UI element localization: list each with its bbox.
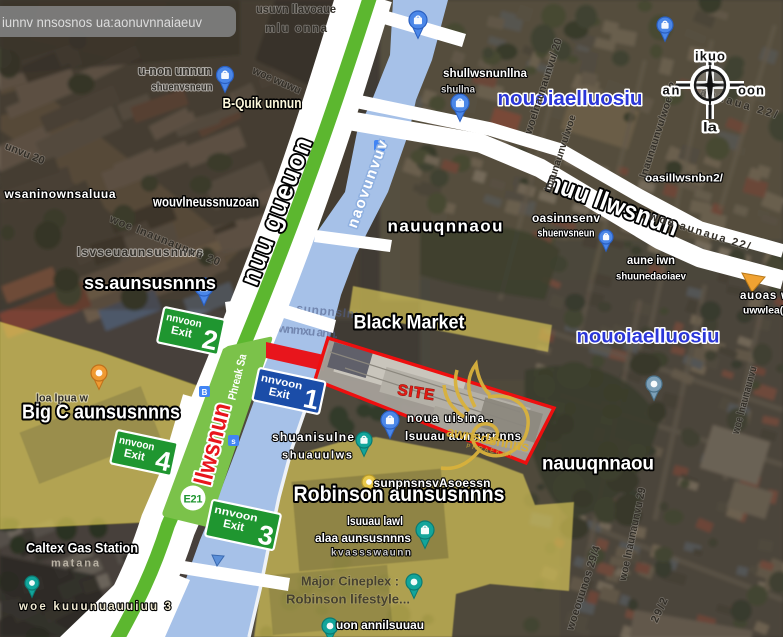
svg-text:oon: oon	[738, 82, 764, 97]
svg-text:auoas w: auoas w	[740, 290, 783, 302]
svg-text:Major Cineplex :: Major Cineplex :	[301, 573, 399, 588]
svg-text:shuanisulne: shuanisulne	[272, 430, 354, 444]
svg-text:Robinson lifestyle...: Robinson lifestyle...	[286, 591, 410, 606]
svg-text:B-Quik unnun: B-Quik unnun	[223, 96, 302, 112]
svg-text:nouoiaelluosiu: nouoiaelluosiu	[577, 325, 720, 347]
svg-text:shuauulws: shuauulws	[282, 450, 352, 462]
svg-text:loa lpua w: loa lpua w	[36, 393, 88, 405]
svg-text:shullwsnunllna: shullwsnunllna	[443, 66, 527, 80]
svg-text:usuvn llavoaue: usuvn llavoaue	[256, 4, 336, 16]
svg-text:mlu onna: mlu onna	[265, 23, 328, 35]
svg-text:shuenvsneun: shuenvsneun	[152, 82, 213, 94]
svg-text:wouvlneussnuzoan: wouvlneussnuzoan	[152, 195, 259, 210]
svg-text:oasillwsnbn2/: oasillwsnbn2/	[645, 173, 723, 185]
svg-text:la: la	[703, 119, 718, 134]
svg-text:Black Market: Black Market	[354, 311, 465, 333]
svg-text:Caltex Gas Station: Caltex Gas Station	[26, 541, 138, 556]
svg-text:alaa aunsusnnns: alaa aunsusnnns	[315, 531, 411, 545]
svg-text:lsuuau lawl: lsuuau lawl	[347, 514, 403, 528]
svg-text:kvassswaunn: kvassswaunn	[331, 547, 411, 558]
svg-text:nouoiaelluosiu: nouoiaelluosiu	[498, 87, 643, 110]
svg-text:nauuqnnaou: nauuqnnaou	[388, 217, 503, 236]
svg-text:s: s	[231, 437, 236, 446]
svg-text:shuunedaoiaev: shuunedaoiaev	[616, 271, 686, 283]
svg-text:u-non unnun: u-non unnun	[138, 64, 212, 78]
svg-text:ss.aunsusnnns: ss.aunsusnnns	[84, 272, 216, 293]
svg-text:E21: E21	[184, 494, 203, 506]
svg-text:shuenvsneun: shuenvsneun	[538, 228, 595, 240]
svg-text:sunpnsnsvAsoessn: sunpnsnsvAsoessn	[374, 476, 491, 490]
svg-text:matana: matana	[51, 558, 100, 570]
svg-text:Big C aunsusnnns: Big C aunsusnnns	[22, 402, 180, 424]
svg-text:uwwlea(s: uwwlea(s	[743, 305, 783, 317]
svg-text:oasinnsenv: oasinnsenv	[532, 211, 600, 225]
svg-text:ikuo: ikuo	[695, 48, 725, 63]
svg-text:B: B	[202, 388, 208, 397]
svg-text:an: an	[663, 82, 680, 97]
svg-text:shullna: shullna	[441, 84, 475, 96]
svg-text:nauuqnnaou: nauuqnnaou	[542, 453, 654, 474]
svg-text:wsaninownsaluua: wsaninownsaluua	[4, 187, 116, 201]
svg-text:aune iwn: aune iwn	[627, 255, 675, 267]
svg-text:iunnv nnsosnos ua:aonuvnnaiaeu: iunnv nnsosnos ua:aonuvnnaiaeuv	[2, 15, 202, 30]
svg-text:uon annilsuuau: uon annilsuuau	[336, 618, 424, 632]
